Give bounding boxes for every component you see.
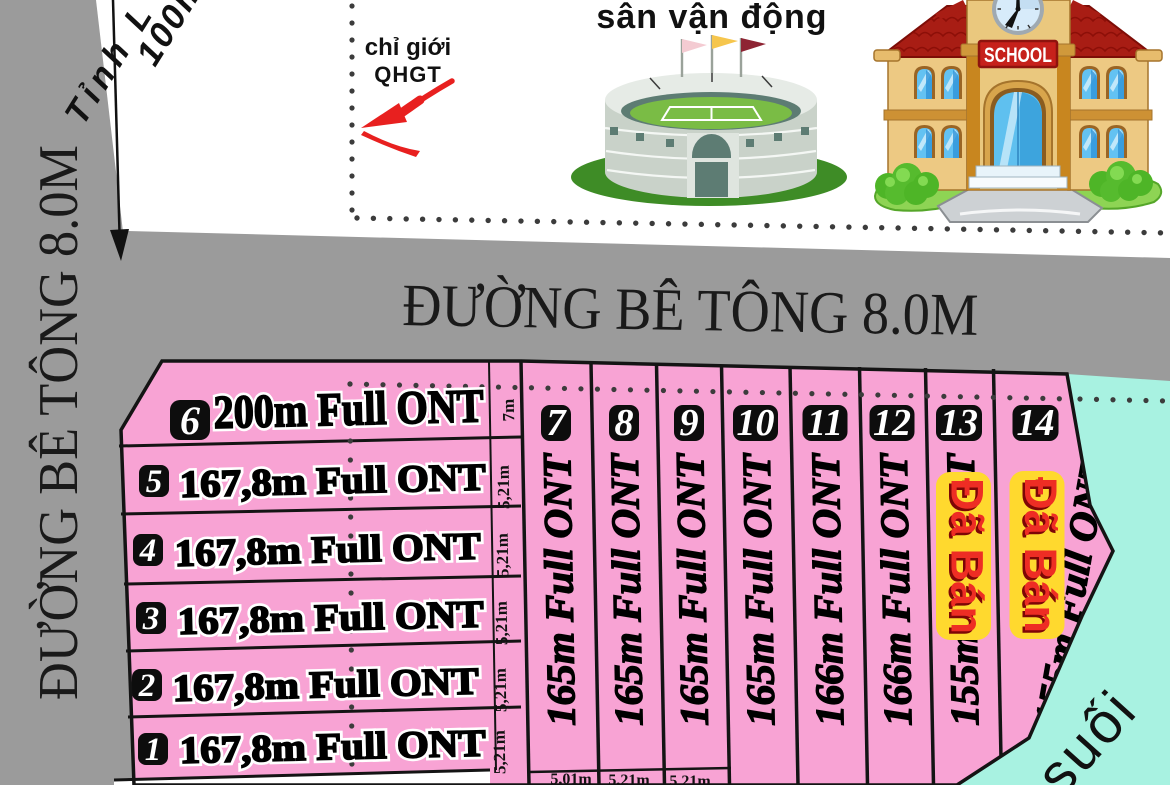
- svg-text:165m Full ONT: 165m Full ONT: [667, 452, 717, 726]
- svg-text:5,21m: 5,21m: [608, 772, 650, 785]
- svg-text:1: 1: [145, 732, 162, 768]
- svg-text:5,21m: 5,21m: [493, 533, 513, 577]
- svg-text:165m Full ONT: 165m Full ONT: [534, 452, 584, 726]
- svg-text:10: 10: [737, 402, 775, 444]
- svg-text:ĐƯỜNG BÊ TÔNG 8.0M: ĐƯỜNG BÊ TÔNG 8.0M: [27, 145, 90, 700]
- svg-text:4: 4: [139, 533, 157, 569]
- svg-text:167,8m Full ONT: 167,8m Full ONT: [172, 661, 479, 710]
- svg-text:QHGT: QHGT: [374, 62, 442, 87]
- svg-text:166m Full ONT: 166m Full ONT: [803, 452, 853, 726]
- svg-text:12: 12: [873, 402, 911, 444]
- svg-text:7: 7: [547, 402, 568, 444]
- svg-text:200m Full ONT: 200m Full ONT: [213, 380, 484, 439]
- svg-text:sân vận động: sân vận động: [596, 0, 827, 36]
- svg-text:7m: 7m: [499, 399, 518, 422]
- svg-text:5,21m: 5,21m: [491, 668, 511, 712]
- svg-text:165m Full ONT: 165m Full ONT: [734, 452, 784, 726]
- svg-text:166m Full ONT: 166m Full ONT: [871, 452, 921, 726]
- svg-text:167,8m Full ONT: 167,8m Full ONT: [179, 723, 486, 772]
- svg-text:Đã Bán: Đã Bán: [942, 478, 993, 634]
- svg-text:11: 11: [807, 402, 843, 444]
- svg-text:5,21m: 5,21m: [490, 730, 510, 774]
- svg-text:167,8m Full ONT: 167,8m Full ONT: [179, 457, 486, 506]
- svg-text:6: 6: [180, 398, 200, 443]
- svg-text:9: 9: [680, 402, 699, 444]
- svg-text:Đã Bán: Đã Bán: [1015, 477, 1066, 633]
- svg-text:167,8m Full ONT: 167,8m Full ONT: [177, 594, 484, 643]
- svg-text:5,21m: 5,21m: [669, 773, 711, 785]
- svg-text:167,8m Full ONT: 167,8m Full ONT: [174, 526, 481, 575]
- svg-text:14: 14: [1017, 402, 1055, 444]
- svg-text:13: 13: [940, 402, 978, 444]
- svg-text:5: 5: [146, 464, 163, 500]
- svg-text:SCHOOL: SCHOOL: [984, 44, 1052, 67]
- svg-text:ĐƯỜNG BÊ TÔNG 8.0M: ĐƯỜNG BÊ TÔNG 8.0M: [402, 272, 979, 348]
- svg-text:5,01m: 5,01m: [550, 771, 592, 785]
- svg-text:5,21m: 5,21m: [494, 465, 514, 509]
- svg-text:3: 3: [142, 601, 160, 637]
- svg-text:5,21m: 5,21m: [492, 601, 512, 645]
- svg-text:chỉ giới: chỉ giới: [365, 34, 451, 61]
- svg-text:2: 2: [138, 668, 156, 704]
- svg-text:8: 8: [615, 402, 634, 444]
- svg-text:165m Full ONT: 165m Full ONT: [602, 452, 652, 726]
